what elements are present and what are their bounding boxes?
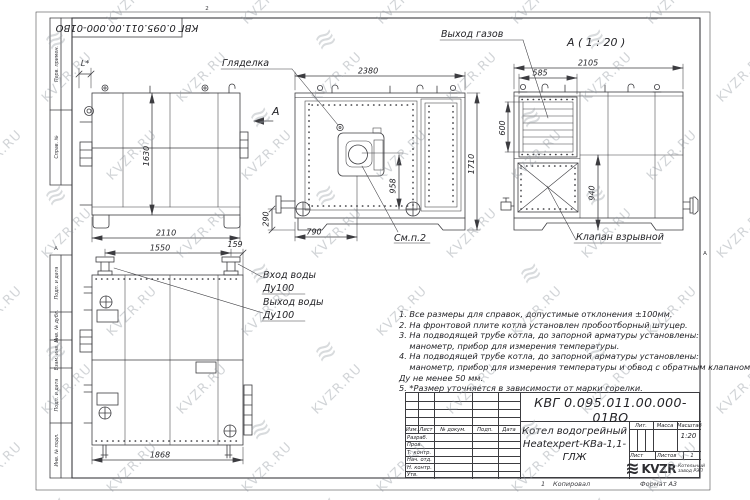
- label-water-outlet-dn: Ду100: [262, 310, 294, 321]
- label-sight-glass: Гляделка: [222, 58, 269, 69]
- dim-flange-span: 1550: [150, 244, 170, 253]
- tb-product-name-line2: Heatexpert-КВа-1,1-ГЛЖ: [520, 438, 629, 464]
- tb-row-label: Т. контр.: [407, 450, 431, 456]
- tb-col-izm: Изм.: [406, 427, 418, 433]
- dim-burner-offset: 790: [306, 228, 321, 237]
- sidebar-label: Перв. примен.: [54, 46, 60, 82]
- dim-outlet-height: 600: [498, 120, 507, 135]
- label-gas-outlet: Выход газов: [441, 29, 504, 40]
- label-water-inlet-dn: Ду100: [262, 283, 294, 294]
- sidebar-label: Инв. № подл.: [54, 433, 60, 466]
- drawing-page: КВГ 0.095.011.00.000-01ВО Перв. примен. …: [0, 0, 750, 500]
- label-explosion-valve: Клапан взрывной: [576, 232, 664, 243]
- tb-sheets-label: Листов: [657, 453, 676, 459]
- tb-lit-label: Лит.: [629, 423, 653, 429]
- zone-marker-right: А: [703, 251, 707, 257]
- dim-l-star: L*: [81, 59, 89, 68]
- note-line: 4. На подводящей трубе котла, до запорно…: [399, 351, 699, 362]
- dim-side-width: 2110: [156, 229, 176, 238]
- tb-product-name-line1: Котел водогрейный: [520, 425, 629, 438]
- view-front: [221, 69, 480, 243]
- label-water-outlet: Выход воды: [263, 297, 324, 308]
- sidebar-label: Справ. №: [54, 135, 60, 158]
- tb-row-label: Н. контр.: [407, 465, 432, 471]
- notes-block: 1. Все размеры для справок, допустимые о…: [399, 309, 699, 394]
- tb-sheets-value: 1: [683, 453, 701, 459]
- tb-sheet-label: Лист: [630, 453, 643, 459]
- view-side: [76, 68, 273, 242]
- note-line: Ду не менее 50 мм.: [399, 373, 699, 384]
- footer-format: Формат А3: [640, 480, 677, 488]
- tb-row-label: Нач. отд.: [407, 457, 432, 463]
- tb-col-date: Дата: [498, 427, 520, 433]
- dim-burner-axis: 958: [389, 178, 398, 193]
- note-line: 2. На фронтовой плите котла установлен п…: [399, 320, 699, 331]
- tb-row-label: Разраб.: [407, 435, 427, 441]
- note-line: 1. Все размеры для справок, допустимые о…: [399, 309, 699, 320]
- dim-viewa-width: 2105: [578, 59, 598, 68]
- view-top: [80, 249, 305, 464]
- tb-row-label: Утв.: [407, 472, 418, 478]
- tb-col-doc: № докум.: [434, 427, 472, 433]
- label-water-inlet: Вход воды: [263, 270, 317, 281]
- tb-col-sign: Подп.: [472, 427, 498, 433]
- zone-marker-top: 2: [205, 6, 209, 12]
- dim-front-height: 1710: [467, 154, 476, 174]
- label-see-note: См.п.2: [394, 233, 426, 244]
- tb-doc-number: КВГ 0.095.011.00.000-01ВО: [520, 395, 701, 421]
- note-line: манометр, прибор для измерения температу…: [399, 362, 699, 373]
- company-logo: ≋ KVZR Котельный завод РЭП: [629, 459, 701, 479]
- dim-outlet-width: 585: [532, 69, 547, 78]
- section-letter: А: [271, 105, 280, 118]
- company-name: Котельный завод РЭП: [678, 464, 705, 474]
- dim-side-height: 1630: [142, 146, 151, 166]
- footer-zone: 1: [541, 480, 545, 488]
- sidebar-label: Инв. № дубл.: [54, 310, 60, 343]
- title-block: Изм. Лист № докум. Подп. Дата Разраб. Пр…: [405, 392, 700, 478]
- zone-marker-left: А: [54, 246, 58, 252]
- logo-text: KVZR: [641, 462, 676, 476]
- footer-copied: Копировал: [553, 480, 590, 488]
- stamp-doc-number: КВГ 0.095.011.00.000-01ВО: [55, 22, 198, 33]
- note-line: манометр, прибор для измерения температу…: [399, 341, 699, 352]
- view-a: [440, 40, 698, 243]
- tb-product-name: Котел водогрейный Heatexpert-КВа-1,1-ГЛЖ: [520, 425, 629, 464]
- tb-col-list: Лист: [418, 427, 434, 433]
- dim-pipe-axis: 290: [262, 211, 271, 226]
- sidebar-label: Взам. инв. №: [54, 338, 60, 371]
- sidebar-label: Подп. и дата: [54, 267, 60, 300]
- tb-scale-value: 1:20: [676, 432, 701, 440]
- logo-waves-icon: ≋: [625, 461, 639, 478]
- sidebar-label: Подп. и дата: [54, 379, 60, 412]
- tb-row-label: Пров.: [407, 442, 422, 448]
- dim-flange-edge: 159: [227, 240, 242, 249]
- label-view-a: А ( 1 : 20 ): [566, 36, 625, 49]
- tb-mass-label: Масса: [653, 423, 677, 429]
- note-line: 3. На подводящей трубе котла, до запорно…: [399, 330, 699, 341]
- dim-valve-height: 940: [588, 185, 597, 200]
- dim-front-width: 2380: [358, 67, 378, 76]
- tb-scale-label: Масштаб: [677, 423, 701, 429]
- dim-top-length: 1868: [150, 451, 170, 460]
